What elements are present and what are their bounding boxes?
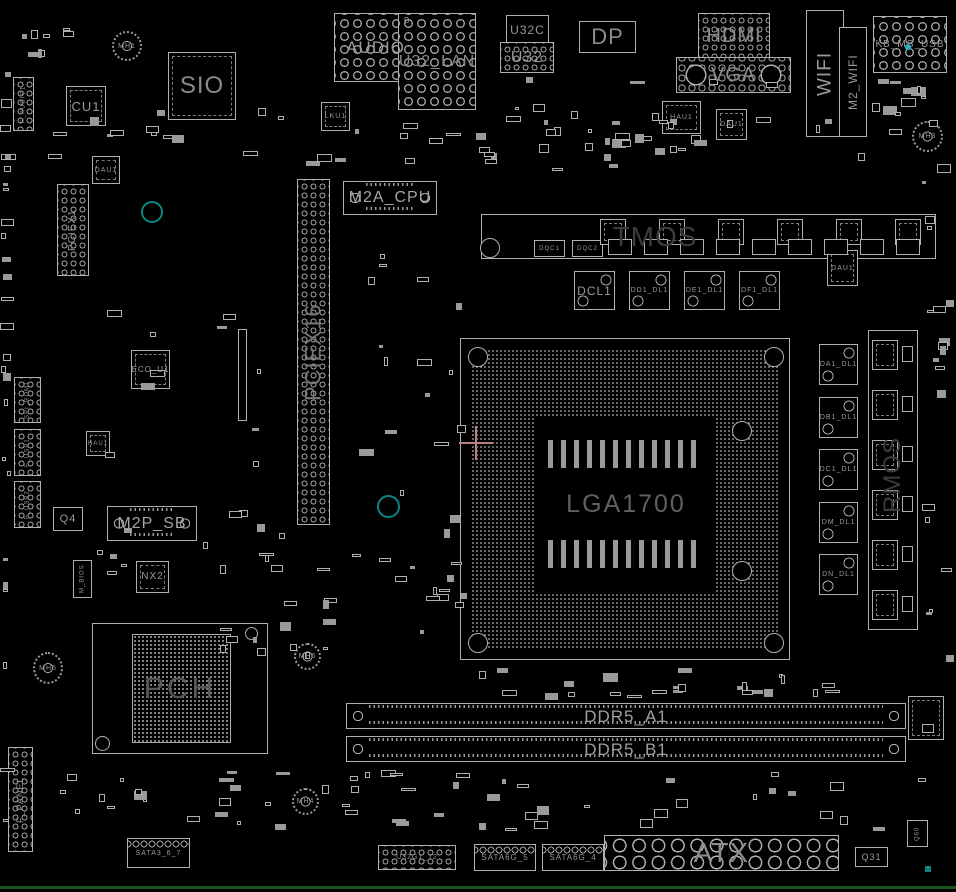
smd-part [2,257,11,262]
chip-hau1-b[interactable]: HAU1 [86,431,110,456]
via-ring-b [377,495,400,518]
smd-part [217,326,227,329]
smd-part [322,785,329,794]
smd-part [3,558,8,561]
smd-part [771,772,779,777]
smd-part [187,816,200,822]
smd-part [456,773,470,778]
conn-f-panel[interactable]: F_PANEL [8,747,33,852]
smd-part [258,108,266,116]
smd-part [420,630,424,634]
smd-part [146,126,159,133]
chip-cu1-label: CU1 [67,87,105,125]
smd-part [858,153,865,161]
smd-part [925,216,935,224]
mount-hole-mh3-label: MH3 [914,123,941,150]
smd-part [546,129,556,136]
mount-hole-mh6-label: MH6 [296,645,319,668]
smd-part [229,511,242,518]
vrm-fet-bottom [680,239,704,255]
smd-part [533,104,545,112]
smd-part [135,789,142,795]
smd-part [7,471,11,476]
socket-cavity: LGA1700 [536,416,716,592]
socket-hole [732,421,752,441]
smd-part [652,113,659,121]
smd-part [317,568,330,571]
part-q4[interactable]: Q4 [53,507,83,531]
chip-dau1-c[interactable]: DAU1 [827,250,858,286]
smd-part [485,159,497,164]
conn-f-panel-label: F_PANEL [9,748,32,851]
ind-dm-dl1-label: DM_DL1 [820,503,857,542]
smd-part [781,675,785,684]
smd-part [379,264,387,267]
conn-vga-label: VGA [677,58,790,92]
slot-ddr5-a1[interactable]: DDR5_A1 [346,703,906,729]
smd-part [502,779,506,784]
chip-dqc2[interactable]: DQC2 [572,240,603,257]
smd-part [43,34,50,38]
smd-part [3,582,8,589]
smd-part [379,558,391,562]
part-q60-label: Q60 [908,821,927,846]
conn-spi-rom[interactable]: SPI_ROM1 [14,377,41,423]
conn-f-audio-label: F_AUDIO1 [14,78,33,130]
pch-chip[interactable]: PCH [92,623,268,754]
smd-part [227,771,237,774]
smd-part [537,806,549,815]
mount-hole-mh3[interactable]: MH3 [912,121,943,152]
vrm-fet-bottom [752,239,776,255]
ind-dcl1[interactable]: DCL1 [574,271,615,310]
board-edge-line [0,886,956,889]
conn-dp[interactable]: DP [579,21,636,53]
vrm-driver-right [902,546,913,562]
smd-part [401,788,416,791]
smd-part [335,158,346,162]
smd-part [479,823,486,830]
ind-dm-dl1[interactable]: DM_DL1 [819,502,858,543]
smd-part [53,132,67,136]
ind-dn-dl1[interactable]: DN_DL1 [819,554,858,595]
socket-label: LGA1700 [536,416,716,592]
smd-part [447,575,454,582]
slot-m2p-sb[interactable]: M2P_SB [107,506,197,541]
smd-part [323,600,329,609]
smd-part [922,724,934,733]
chip-hau1-a[interactable]: HAU1 [662,101,701,134]
smd-part [4,166,11,172]
vrm-fet-bottom [896,239,920,255]
chip-sio[interactable]: SIO [168,52,236,120]
smd-part [275,824,286,830]
conn-u32g1[interactable]: U32G1_12 [378,845,456,870]
ind-dd1-dl1[interactable]: DD1_DL1 [629,271,670,310]
smd-part [400,133,408,139]
vrm-driver-right [902,346,913,362]
mount-hole-mh5[interactable]: MH5 [33,652,63,684]
smd-part [456,303,462,310]
smd-part [429,138,443,144]
smd-part [4,399,8,406]
smd-part [820,811,833,819]
conn-f-usb2[interactable]: F_USB2 [14,481,41,528]
smd-part [3,183,8,186]
vrm-fet-bottom [860,239,884,255]
smd-part [3,354,11,361]
smd-part [609,164,618,168]
smd-part [890,81,901,84]
smd-part [652,690,667,694]
smd-part [434,442,449,446]
conn-u32c[interactable]: U32C [506,15,549,44]
smd-part [253,461,259,467]
smd-part [941,568,952,572]
ind-da1-dl1[interactable]: DA1_DL1 [819,344,858,385]
chip-eco-u1[interactable]: ECO_U1 [131,350,170,389]
conn-vga[interactable]: VGA [676,57,791,93]
smd-part [150,332,156,337]
smd-part [694,140,707,146]
ind-de1-dl1[interactable]: DE1_DL1 [684,271,725,310]
smd-part [0,323,14,330]
smd-part [479,671,486,679]
conn-f-usb2-label: F_USB2 [15,482,40,527]
smd-part [922,504,935,511]
part-q60[interactable]: Q60 [907,820,928,847]
part-nx2-label: NX2 [137,562,168,592]
conn-kb-ms-usb-label: KB_MS_USB [874,17,946,72]
smd-part [433,587,437,595]
smd-part [3,274,12,280]
teal-dot [925,866,931,872]
smd-part [385,430,397,434]
vrm-fet-right [872,540,898,570]
ind-db1-dl1[interactable]: DB1_DL1 [819,397,858,438]
smd-part [825,690,840,693]
conn-f-usb1-label: F_USB1 [15,430,40,475]
smd-part [67,774,77,781]
socket-hole [468,347,488,367]
smd-part [368,277,375,285]
chip-dau1-a[interactable]: DAU1 [92,156,120,184]
smd-part [895,112,901,116]
slot-pciex1[interactable]: PCIEX1 [57,184,89,276]
socket-hole [732,561,752,581]
conn-u32[interactable]: U32 [500,42,554,73]
smd-part [476,133,486,140]
conn-f-audio[interactable]: F_AUDIO1 [13,77,34,131]
chip-m-bios-label: M_BIOS [74,561,91,597]
socket-hole [468,633,488,653]
smd-part [937,164,951,173]
smd-part [517,784,529,788]
chip-sio-label: SIO [169,53,235,119]
conn-sata6g-5[interactable]: SATA6G_5 [474,844,536,871]
smd-part [342,804,350,807]
part-nx2[interactable]: NX2 [136,561,169,593]
conn-sata3-6-7[interactable]: SATA3_6_7 [127,838,190,868]
chip-dau1-a-label: DAU1 [93,157,119,183]
conn-sata6g-5-label: SATA6G_5 [475,845,535,870]
smd-part [666,778,675,783]
smd-part [544,120,548,125]
smd-part [457,425,466,433]
smd-part [446,133,461,136]
smd-part [230,785,241,791]
smd-part [655,148,665,155]
smd-part [878,79,889,84]
ind-dn-dl1-label: DN_DL1 [820,555,857,594]
ind-df1-dl1-label: DF1_DL1 [740,272,779,309]
smd-part [564,681,574,687]
conn-sata6g-4[interactable]: SATA6G_4 [542,844,604,871]
part-q31-label: Q31 [856,848,887,866]
slot-m2a-cpu-label: M2A_CPU [344,182,436,214]
chip-eco-u1-label: ECO_U1 [132,351,169,388]
smd-part [284,601,297,606]
conn-hdmi[interactable]: HDMI [698,13,770,58]
smd-part [351,786,359,793]
vrm-screw-hole [480,238,500,258]
chip-dqc1[interactable]: DQC1 [534,240,565,257]
chip-dau1-b[interactable]: DAU1 [716,109,747,140]
conn-hdmi-label: HDMI [699,14,769,57]
smd-part [323,619,336,625]
slot-m2a-cpu[interactable]: M2A_CPU [343,181,437,215]
slot-m2p-sb-label: M2P_SB [108,507,196,540]
smd-part [925,517,930,523]
smd-part [379,345,383,348]
slot-pciex16-label: PCIEX16 [298,180,329,524]
smd-part [317,154,332,162]
smd-part [107,571,117,575]
chip-dqc1-label: DQC1 [535,241,564,256]
mount-hole-mh4-label: MH4 [294,790,317,813]
conn-wifi[interactable]: WIFI [806,10,844,137]
smd-part [220,565,226,574]
chip-lku1[interactable]: LKU1 [321,102,350,131]
smd-part [425,393,430,397]
cpu-socket[interactable]: LGA1700 [460,338,790,660]
chip-dau1-c-label: DAU1 [828,251,857,285]
conn-u32-lan[interactable]: U32_LAN [398,13,476,110]
smd-part [439,589,450,592]
vrm-driver-right [902,596,913,612]
vrm-fet-bottom [788,239,812,255]
conn-atx[interactable]: ATX [604,835,839,871]
smd-part [323,647,328,650]
slot-m2-wifi-label: M2_WIFI [840,28,866,136]
smd-part [937,390,946,398]
smd-part [756,117,771,123]
smd-part [63,31,74,37]
smd-part [505,828,517,831]
smd-part [940,346,946,355]
smd-part [345,810,358,815]
smd-part [426,596,440,601]
smd-part [753,794,757,800]
vrm-driver-right [902,396,913,412]
smd-part [276,772,290,775]
vrm-fet-bottom [608,239,632,255]
conn-u32g1-label: U32G1_12 [379,846,455,869]
mount-hole-mh6[interactable]: MH6 [294,643,321,670]
vrm-right-region [868,330,918,630]
smd-part [237,821,241,825]
chip-hau1-a-label: HAU1 [663,102,700,133]
mount-hole-mh1[interactable]: MH1 [112,31,142,61]
smd-part [257,369,261,374]
smd-part [271,565,283,572]
smd-part [3,373,11,381]
slot-ddr5-a1-label: DDR5_A1 [347,704,905,728]
smd-part [539,144,549,153]
smd-part [365,772,370,778]
smd-part [830,782,844,791]
conn-u32-lan-label: U32_LAN [399,14,475,109]
smd-part [384,357,388,366]
slot-pciex16[interactable]: PCIEX16 [297,179,330,525]
smd-part [417,359,432,366]
smd-part [654,809,668,818]
smd-part [110,130,124,136]
conn-sata6g-4-label: SATA6G_4 [543,845,603,870]
chip-hau1-b-label: HAU1 [87,432,109,455]
smd-part [526,77,533,83]
ind-df1-dl1[interactable]: DF1_DL1 [739,271,780,310]
conn-f-usb1[interactable]: F_USB1 [14,429,41,476]
mount-hole-mh4[interactable]: MH4 [292,788,319,815]
smd-part [872,103,880,112]
smd-part [434,813,444,817]
smd-part [38,49,42,58]
conn-u32c-label: U32C [507,16,548,43]
smd-part [3,589,8,592]
smd-part [1,366,6,373]
vrm-fet-right [872,590,898,620]
slot-ddr5-b1[interactable]: DDR5_B1 [346,736,906,762]
ind-dd1-dl1-label: DD1_DL1 [630,272,669,309]
smd-part [120,778,124,782]
smd-part [3,188,9,191]
smd-part [678,668,692,673]
smd-part [203,542,208,549]
smd-part [395,576,407,582]
smd-part [417,277,429,282]
smd-part [935,366,945,370]
mount-hole-mh1-label: MH1 [114,33,140,59]
smd-part [933,358,939,362]
smd-part [455,602,464,608]
chip-cu1[interactable]: CU1 [66,86,106,126]
conn-kb-ms-usb[interactable]: KB_MS_USB [873,16,947,73]
smd-part [75,809,80,814]
smd-part [588,129,592,133]
smd-part [1,99,12,108]
smd-part [630,81,645,84]
smd-part [0,125,11,132]
smd-part [610,692,621,696]
smd-part [107,806,115,809]
smd-part [822,683,835,688]
chip-dqc2-label: DQC2 [573,241,602,256]
vrm-fet-right [872,390,898,420]
vrm-fet-bottom [716,239,740,255]
smd-part [449,370,453,375]
smd-part [99,794,105,802]
smd-part [121,564,127,567]
smd-part [444,529,450,538]
smd-part [1,297,14,301]
slot-m2-wifi[interactable]: M2_WIFI [839,27,867,137]
smd-part [917,86,921,94]
smd-part [5,72,11,77]
smd-part [400,490,404,496]
smd-part [552,168,563,171]
ind-dc1-dl1-label: DC1_DL1 [820,450,857,489]
smd-part [352,554,361,557]
smd-part [252,428,259,431]
smd-part [405,158,415,164]
smd-part [355,129,359,134]
smd-part [484,152,495,157]
slot-ddr5-b1-label: DDR5_B1 [347,737,905,761]
part-q31[interactable]: Q31 [855,847,888,867]
smd-part [450,515,460,523]
smd-part [604,154,611,161]
smd-part [584,805,590,808]
smd-part [922,181,926,184]
smd-part [678,684,686,692]
smd-part [390,773,403,776]
smd-part [453,782,459,789]
smd-part [265,555,269,562]
chip-m-bios[interactable]: M_BIOS [73,560,92,598]
smd-part [946,300,954,307]
smd-part [926,612,932,615]
smd-part [31,30,38,39]
slot-thin [238,329,247,421]
smd-part [585,143,593,151]
smd-part [612,121,620,125]
smd-part [172,135,184,143]
smd-part [571,111,578,119]
smd-part [534,821,548,829]
pch-label: PCH [93,624,267,753]
smd-part [676,799,688,808]
smd-part [97,550,103,555]
ind-da1-dl1-label: DA1_DL1 [820,345,857,384]
smd-part [506,116,521,122]
conn-wifi-label: WIFI [807,11,843,136]
smd-part [502,690,517,696]
smd-part [640,819,653,828]
ind-dc1-dl1[interactable]: DC1_DL1 [819,449,858,490]
vrm-driver-right [902,496,913,512]
chip-lku1-label: LKU1 [322,103,349,130]
smd-part [568,692,575,697]
socket-hole [764,633,784,653]
smd-part [487,794,500,801]
smd-part [403,123,418,129]
smd-part [278,116,284,120]
smd-part [110,554,117,559]
smd-part [873,827,885,831]
via-ring-a [141,201,163,223]
board-canvas[interactable]: LGA1700 PCH CU1SIOMH1F_AUDIO1DAU1PCIEX1S… [0,0,956,892]
